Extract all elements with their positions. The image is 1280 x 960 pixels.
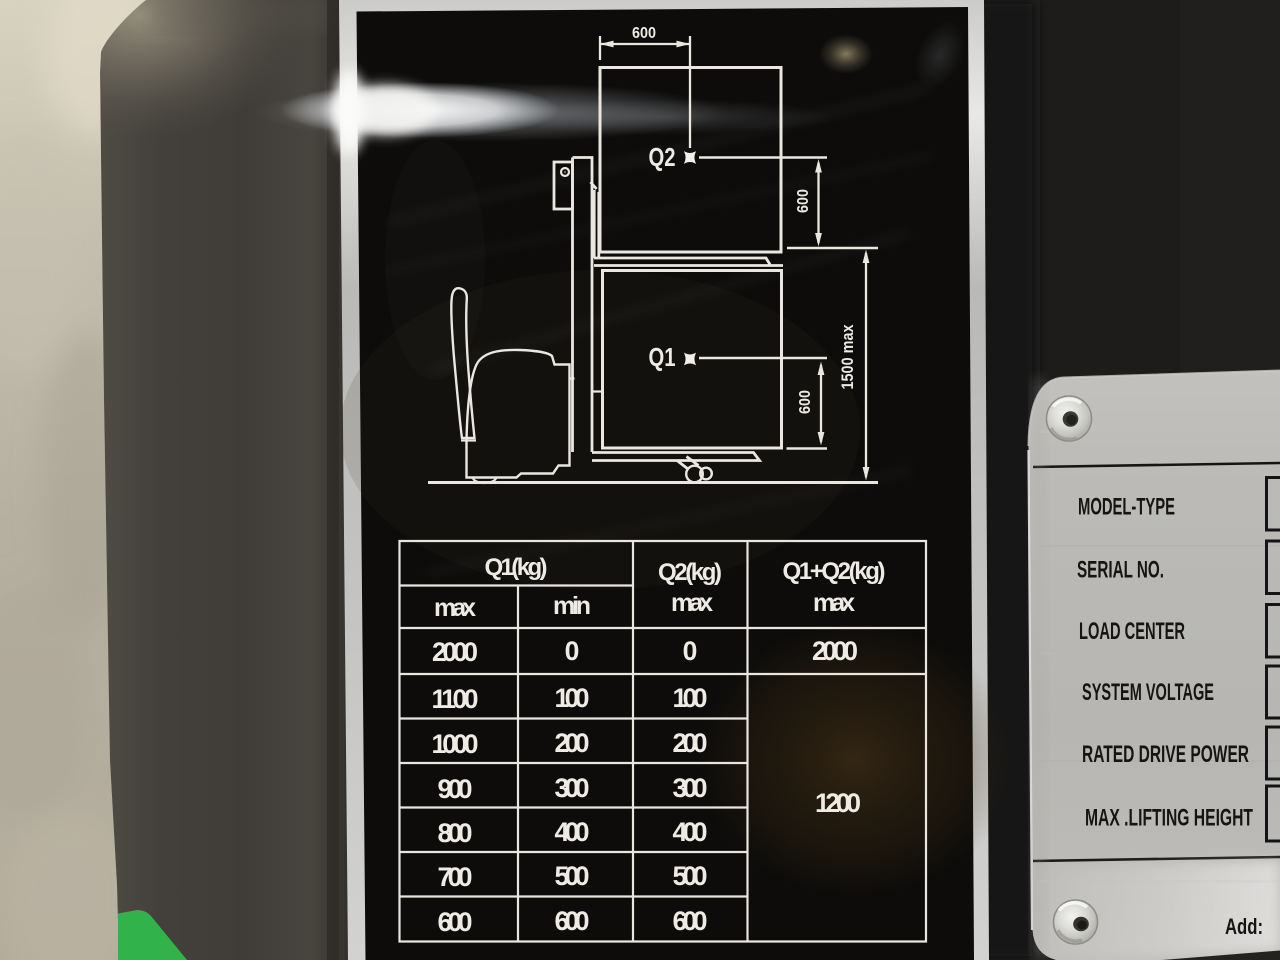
svg-text:Q1: Q1 xyxy=(649,342,676,372)
svg-text:max: max xyxy=(813,589,855,617)
svg-text:800: 800 xyxy=(438,818,473,848)
svg-text:400: 400 xyxy=(555,817,590,847)
svg-text:100: 100 xyxy=(555,683,590,713)
svg-text:2000: 2000 xyxy=(812,636,858,666)
svg-text:700: 700 xyxy=(438,862,473,892)
svg-text:Q1(kg): Q1(kg) xyxy=(485,554,548,581)
svg-text:max: max xyxy=(671,589,713,617)
svg-text:Add:: Add: xyxy=(1225,914,1263,939)
svg-text:SERIAL NO.: SERIAL NO. xyxy=(1077,557,1164,584)
svg-text:1100: 1100 xyxy=(432,684,479,714)
svg-text:1500 max: 1500 max xyxy=(839,324,857,390)
svg-text:300: 300 xyxy=(555,773,590,803)
svg-text:2000: 2000 xyxy=(432,637,478,667)
svg-text:MODEL-TYPE: MODEL-TYPE xyxy=(1078,494,1175,521)
svg-text:600: 600 xyxy=(438,907,473,937)
svg-text:LOAD CENTER: LOAD CENTER xyxy=(1079,618,1185,645)
svg-text:Q1+Q2(kg): Q1+Q2(kg) xyxy=(783,558,886,585)
svg-text:Q2: Q2 xyxy=(649,142,676,172)
svg-text:500: 500 xyxy=(555,861,590,891)
svg-text:0: 0 xyxy=(565,636,580,666)
svg-text:600: 600 xyxy=(795,189,812,213)
svg-text:1000: 1000 xyxy=(432,729,479,759)
svg-text:600: 600 xyxy=(673,906,708,936)
svg-text:900: 900 xyxy=(438,774,473,804)
svg-text:max: max xyxy=(434,594,476,622)
svg-text:Q2(kg): Q2(kg) xyxy=(658,559,722,586)
svg-text:600: 600 xyxy=(797,390,814,414)
svg-text:400: 400 xyxy=(673,817,708,847)
svg-text:500: 500 xyxy=(673,861,708,891)
svg-text:RATED DRIVE POWER: RATED DRIVE POWER xyxy=(1082,741,1249,768)
svg-text:200: 200 xyxy=(555,728,590,758)
svg-text:min: min xyxy=(553,592,591,620)
svg-text:200: 200 xyxy=(673,728,708,758)
svg-text:SYSTEM VOLTAGE: SYSTEM VOLTAGE xyxy=(1082,679,1214,706)
svg-text:300: 300 xyxy=(673,773,708,803)
svg-text:MAX .LIFTING HEIGHT: MAX .LIFTING HEIGHT xyxy=(1085,805,1253,832)
svg-text:600: 600 xyxy=(632,25,656,42)
svg-text:100: 100 xyxy=(673,683,708,713)
svg-text:0: 0 xyxy=(683,636,698,666)
svg-text:600: 600 xyxy=(555,906,590,936)
svg-text:1200: 1200 xyxy=(815,788,861,818)
